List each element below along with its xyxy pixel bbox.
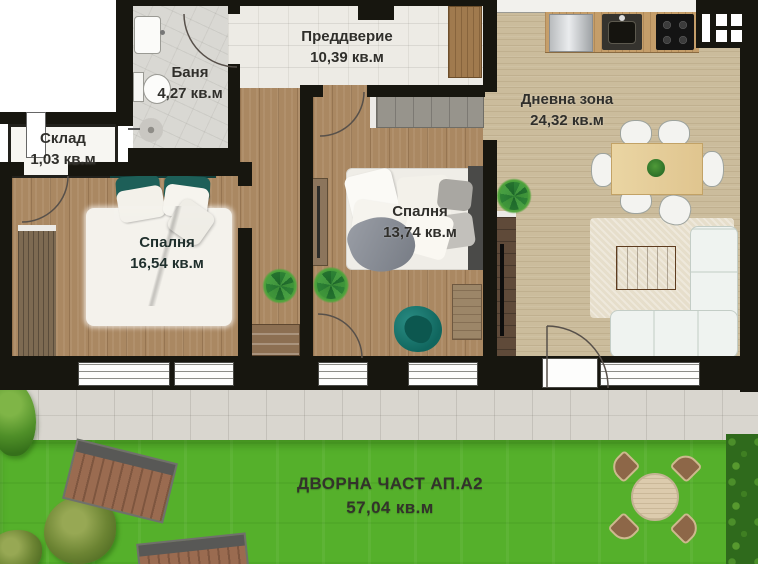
door-arc-living-terrace [547,326,608,388]
door-arc-bedroom-2-terrace [318,314,362,358]
label-yard: ДВОРНА ЧАСТ АП.А2 57,04 кв.м [297,472,483,520]
room-area: 13,74 кв.м [383,222,457,243]
door-arc-bathroom [184,14,237,67]
door-arc-bedroom-2 [320,92,364,136]
label-entry: Преддверие 10,39 кв.м [301,26,392,69]
room-name: Преддверие [301,26,392,47]
label-bathroom: Баня 4,27 кв.м [157,62,222,105]
label-bedroom-2: Спалня 13,74 кв.м [383,201,457,244]
room-area: 24,32 кв.м [521,110,614,131]
label-bedroom-1: Спалня 16,54 кв.м [130,232,204,275]
room-area: 57,04 кв.м [297,496,483,520]
label-living: Дневна зона 24,32 кв.м [521,89,614,132]
room-name: ДВОРНА ЧАСТ АП.А2 [297,472,483,496]
room-name: Дневна зона [521,89,614,110]
room-name: Склад [30,128,95,149]
floor-plan: Преддверие 10,39 кв.м Баня 4,27 кв.м Скл… [0,0,758,564]
room-area: 10,39 кв.м [301,47,392,68]
label-storage: Склад 1,03 кв.м [30,128,95,171]
room-area: 4,27 кв.м [157,83,222,104]
door-arc-storage [22,176,68,222]
room-area: 1,03 кв.м [30,149,95,170]
room-name: Баня [157,62,222,83]
room-area: 16,54 кв.м [130,253,204,274]
room-name: Спалня [130,232,204,253]
room-name: Спалня [383,201,457,222]
